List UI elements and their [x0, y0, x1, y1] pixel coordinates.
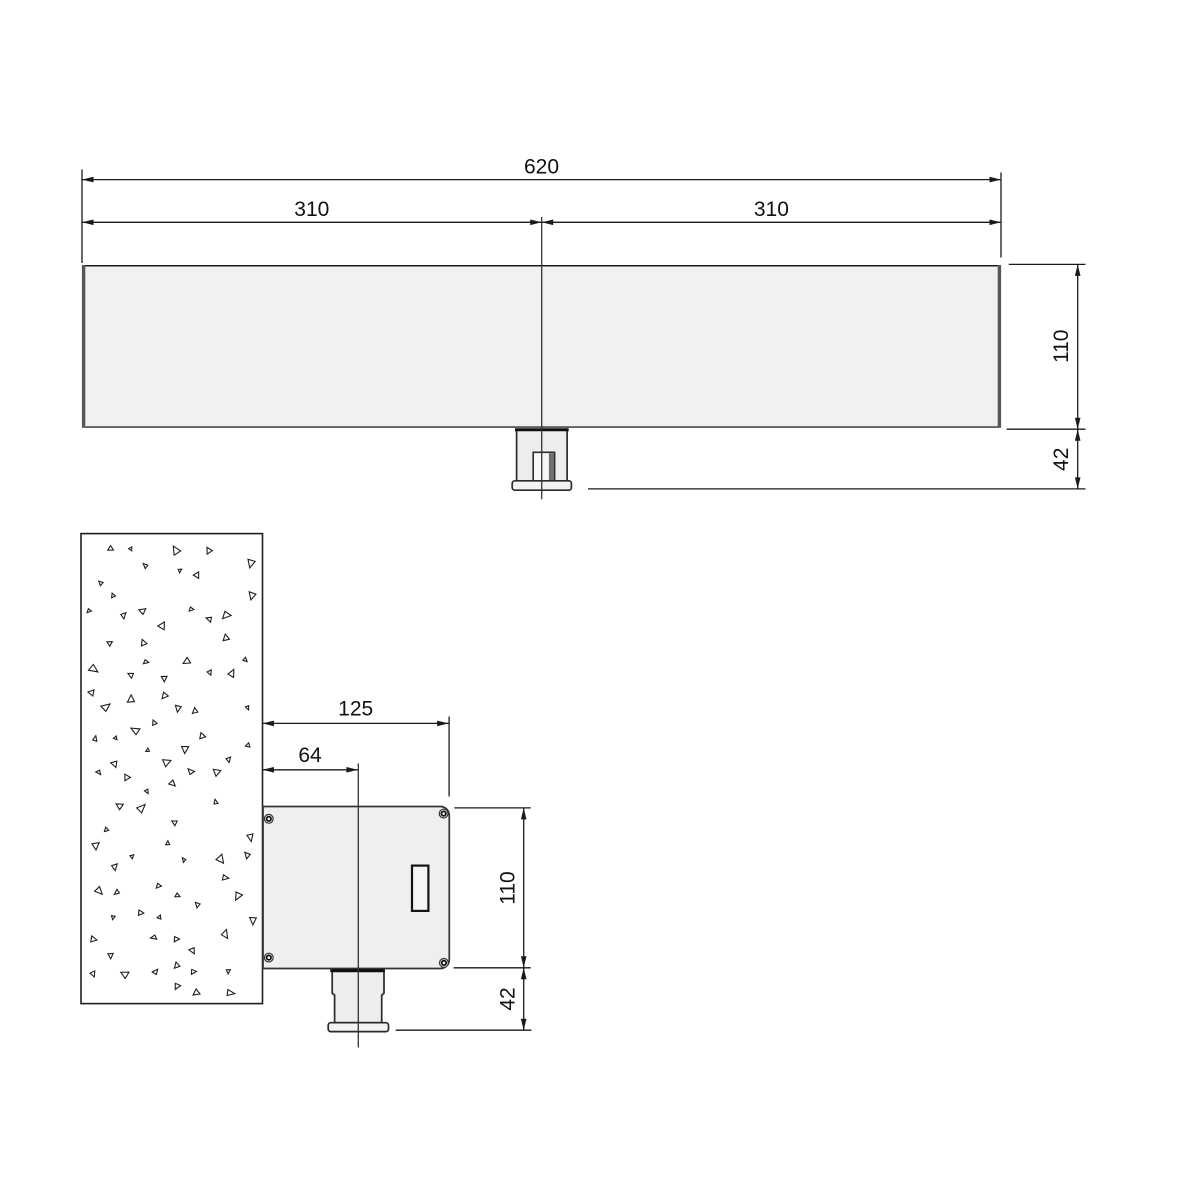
svg-text:110: 110: [497, 871, 520, 904]
svg-text:620: 620: [524, 156, 559, 179]
svg-text:310: 310: [294, 198, 329, 221]
svg-text:64: 64: [298, 744, 322, 767]
svg-text:42: 42: [497, 987, 520, 1010]
svg-text:110: 110: [1050, 330, 1073, 363]
svg-text:310: 310: [754, 198, 789, 221]
svg-text:125: 125: [338, 698, 373, 721]
svg-text:42: 42: [1050, 448, 1073, 471]
